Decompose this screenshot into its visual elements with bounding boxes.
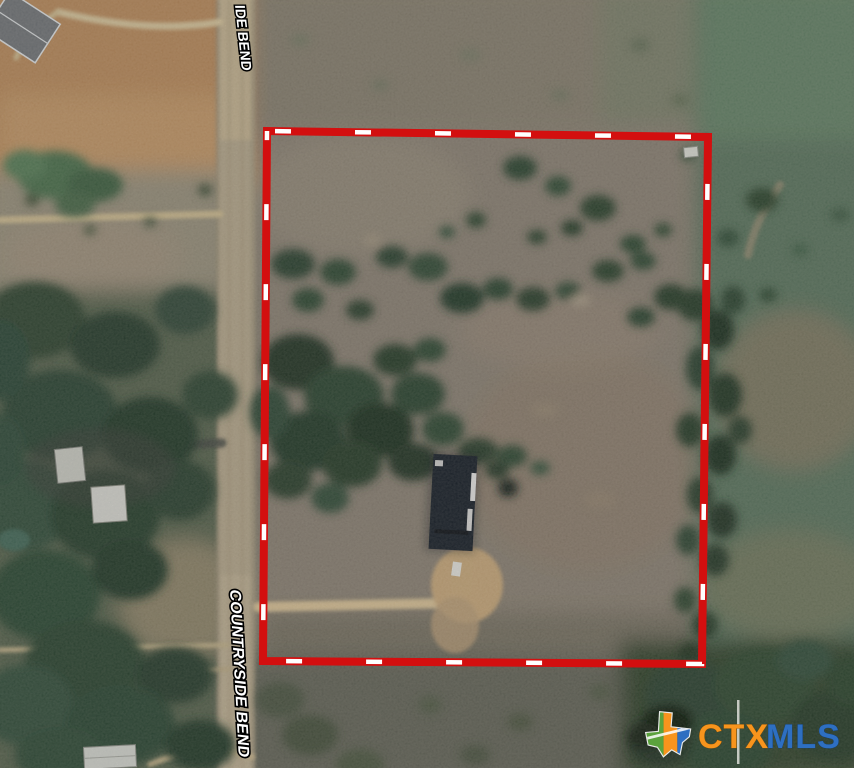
logo-text-ctx: CTX (698, 718, 769, 756)
satellite-canvas: IDE BEND COUNTRYSIDE BEND CTX MLS (0, 0, 854, 768)
aerial-property-photo: IDE BEND COUNTRYSIDE BEND CTX MLS (0, 0, 854, 768)
logo-text-mls: MLS (766, 718, 841, 756)
grain-light (0, 0, 854, 768)
